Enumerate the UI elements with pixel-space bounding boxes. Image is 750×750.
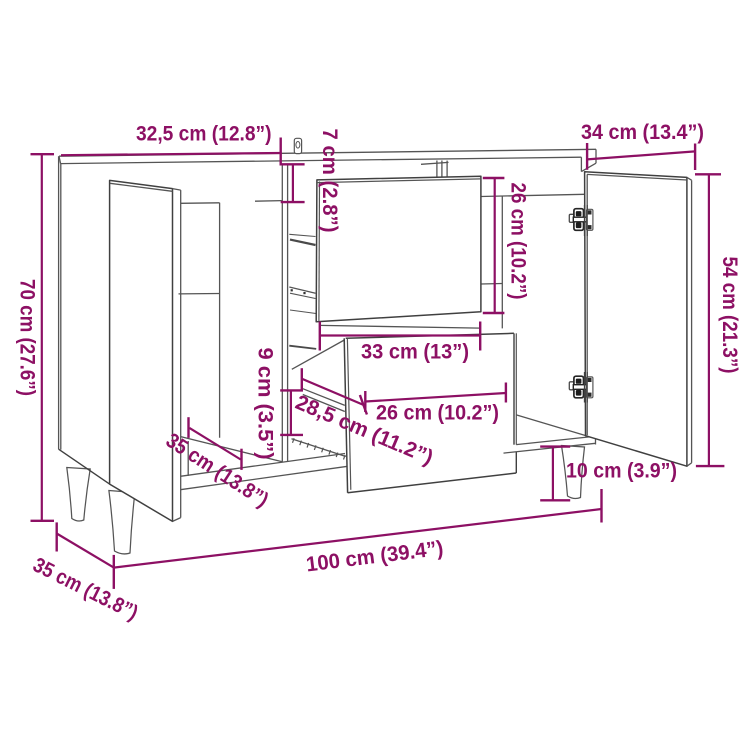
svg-text:26 cm (10.2”): 26 cm (10.2”) xyxy=(376,402,499,425)
svg-text:54 cm (21.3”): 54 cm (21.3”) xyxy=(718,257,741,374)
svg-text:34 cm (13.4”): 34 cm (13.4”) xyxy=(581,121,704,144)
svg-text:32,5 cm (12.8”): 32,5 cm (12.8”) xyxy=(136,123,272,146)
svg-text:70 cm (27.6”): 70 cm (27.6”) xyxy=(16,279,39,396)
svg-text:7 cm (2.8”): 7 cm (2.8”) xyxy=(318,129,341,233)
svg-text:33 cm (13”): 33 cm (13”) xyxy=(361,341,469,364)
svg-text:9 cm (3.5”): 9 cm (3.5”) xyxy=(254,348,277,460)
svg-text:26 cm (10.2”): 26 cm (10.2”) xyxy=(507,183,530,300)
svg-text:10 cm (3.9”): 10 cm (3.9”) xyxy=(566,460,677,483)
